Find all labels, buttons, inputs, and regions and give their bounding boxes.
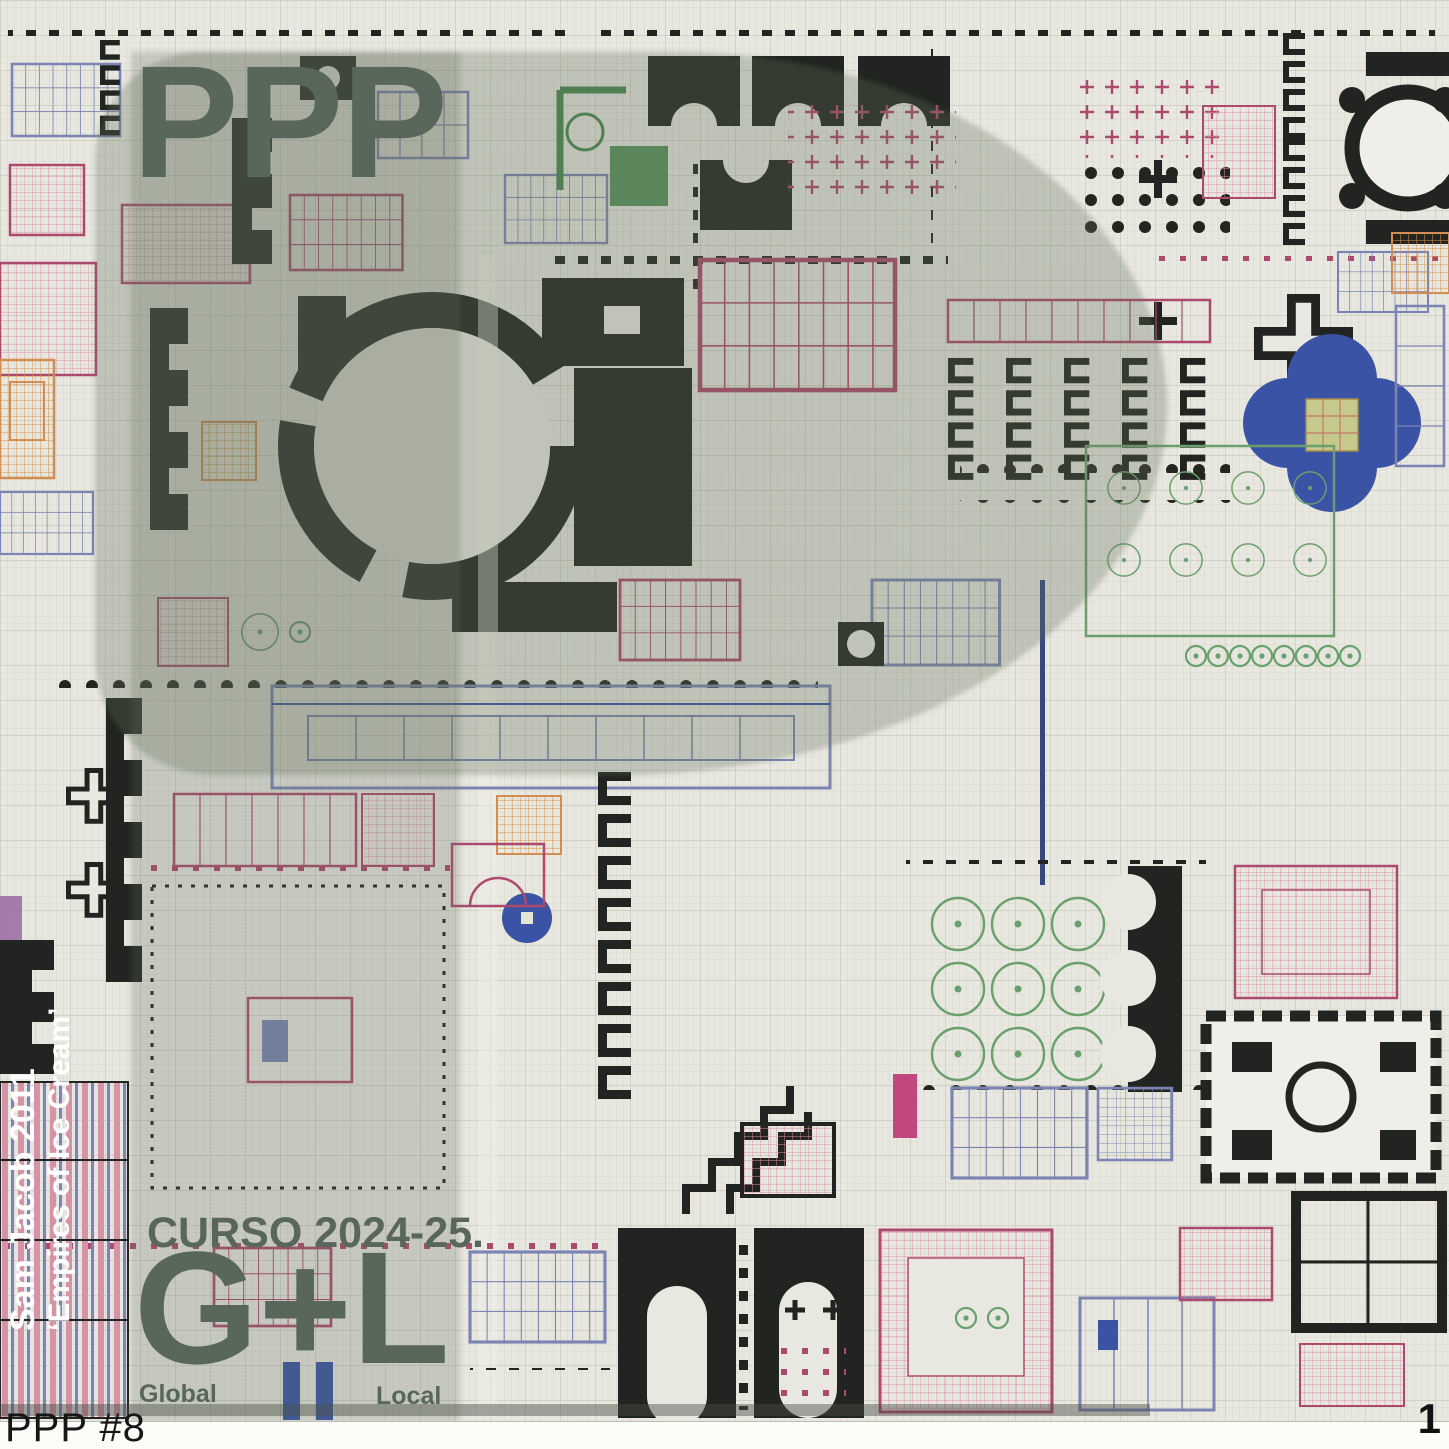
credit-line-1: Sam Jacob 2011 — [4, 911, 43, 1331]
credit-line-2: ‘Empires of Ice Cream’ — [43, 911, 78, 1331]
footer-id: PPP #8 — [5, 1408, 146, 1448]
acronym-gl: G+L — [134, 1228, 450, 1388]
page-number: 1 — [1418, 1398, 1441, 1440]
artwork-credit: Sam Jacob 2011 ‘Empires of Ice Cream’ — [4, 911, 78, 1331]
local-label: Local — [376, 1384, 441, 1409]
watermark-ppp: PPP — [132, 42, 446, 202]
scalloped-wall-plan — [1100, 866, 1182, 1092]
tree-grid-plan — [932, 898, 1104, 1080]
global-label: Global — [139, 1382, 217, 1407]
footer-strip — [0, 1421, 1449, 1449]
poster-canvas: PPP CURSO 2024-25. G+L Global Local Sam … — [0, 0, 1449, 1449]
arch-block-plans — [618, 1228, 864, 1426]
castle-plan — [1206, 1016, 1436, 1178]
